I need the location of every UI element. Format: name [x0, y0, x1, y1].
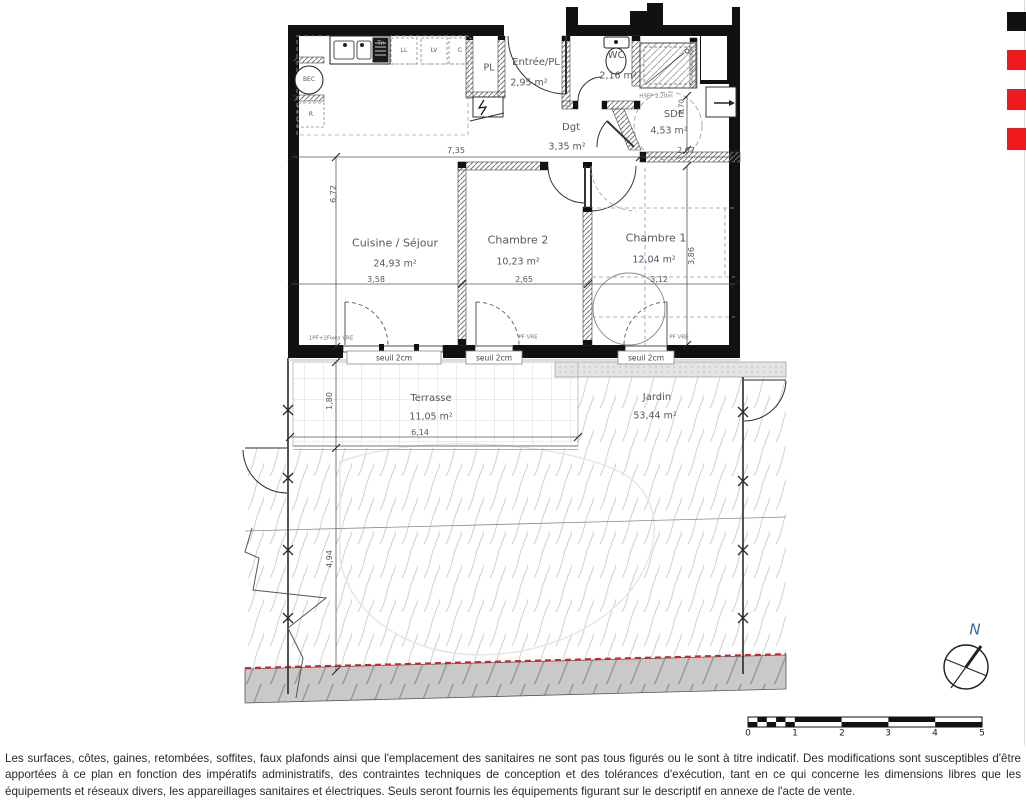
room-label-chambre1: Chambre 1 [626, 233, 687, 244]
floor-plan-drawing [0, 0, 1026, 800]
scale-tick-1: 1 [792, 730, 798, 739]
seuil-label-chambre2: seuil 2cm [476, 354, 512, 362]
electrical-panel [470, 97, 504, 121]
red-marker [1007, 128, 1026, 150]
room-label-wc: WC [608, 51, 625, 61]
window-type-chambre2: PF VRE [518, 335, 537, 341]
room-area-chambre2: 10,23 m² [496, 257, 539, 267]
floor-plan-page: Cuisine / Séjour 24,93 m² Chambre 2 10,2… [0, 0, 1026, 800]
room-area-dgt: 3,35 m² [548, 142, 585, 152]
dim-6-72: 6,72 [330, 185, 338, 203]
appliance-bec: BEC [303, 77, 315, 83]
red-marker [1007, 89, 1026, 110]
appliance-r: R [309, 112, 313, 118]
room-label-jardin: Jardin [643, 393, 671, 403]
room-label-chambre2: Chambre 2 [488, 235, 549, 246]
black-marker [1007, 12, 1026, 31]
appliance-tn: Tn [377, 41, 384, 47]
dim-7-35: 7,35 [447, 147, 465, 155]
dim-2-07: 2,07 [677, 147, 695, 155]
appliance-ll: LL [401, 48, 408, 54]
scale-bar [748, 717, 982, 727]
shower [640, 43, 696, 88]
room-area-entree: 2,95 m² [510, 78, 547, 88]
scale-tick-4: 4 [932, 730, 938, 739]
partitions [458, 36, 740, 345]
dim-2-65: 2,65 [515, 276, 533, 284]
kitchen-fixtures [294, 36, 471, 135]
hsfp-annotation: HSFP 2,20m [639, 94, 672, 100]
dim-1-80: 1,80 [326, 392, 334, 410]
room-area-chambre1: 12,04 m² [632, 255, 675, 265]
room-label-entree: Entrée/PL [512, 58, 560, 68]
dim-3-12: 3,12 [650, 276, 668, 284]
room-label-cuisine: Cuisine / Séjour [352, 238, 438, 249]
north-label: N [969, 623, 980, 638]
room-label-pl: PL [483, 63, 494, 73]
window-type-chambre1: PF VRE [669, 335, 688, 341]
room-area-sde: 4,53 m² [650, 126, 687, 136]
edge-markers [1007, 0, 1026, 745]
seuil-label-living: seuil 2cm [376, 354, 412, 362]
red-marker [1007, 50, 1026, 70]
dim-3-86: 3,86 [688, 247, 696, 265]
dim-6-14: 6,14 [411, 429, 429, 437]
room-area-jardin: 53,44 m² [633, 411, 676, 421]
legal-disclaimer: Les surfaces, côtes, gaines, retombées, … [5, 751, 1021, 800]
room-label-terrasse: Terrasse [410, 394, 451, 404]
seuil-label-chambre1: seuil 2cm [628, 354, 664, 362]
scale-tick-5: 5 [979, 730, 985, 739]
dim-3-58: 3,58 [367, 276, 385, 284]
dim-4-94: 4,94 [326, 550, 334, 568]
scale-tick-3: 3 [885, 730, 891, 739]
dim-2-70: 2,70 [679, 99, 686, 115]
scale-tick-2: 2 [839, 730, 845, 739]
room-area-cuisine: 24,93 m² [373, 259, 416, 269]
doors [345, 36, 667, 345]
appliance-lv: LV [431, 48, 438, 54]
compass [944, 645, 988, 689]
room-area-terrasse: 11,05 m² [409, 412, 452, 422]
washbasin [706, 87, 736, 117]
room-area-wc: 2,16 m² [599, 71, 636, 81]
window-type-living: 1PF+2Fixes VRE [309, 336, 354, 342]
room-label-dgt: Dgt [562, 123, 580, 133]
scale-tick-0: 0 [745, 730, 751, 739]
appliance-c: C [458, 48, 462, 54]
